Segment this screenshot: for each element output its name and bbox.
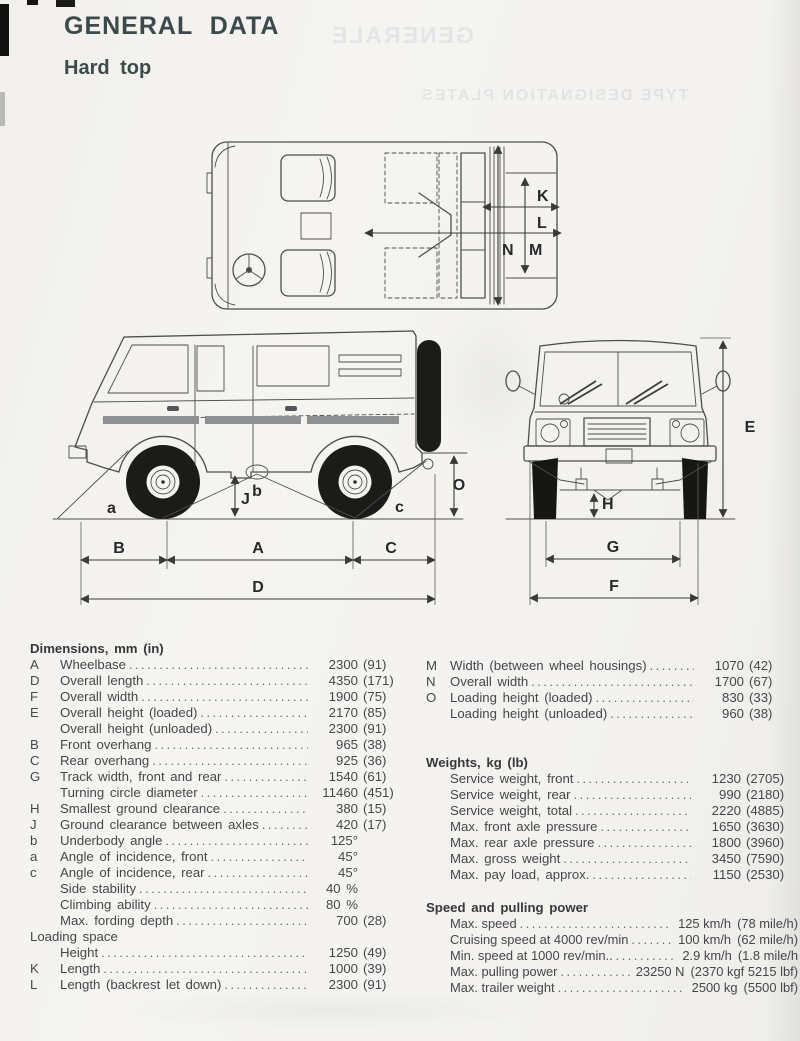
dotted-leader [520, 916, 672, 932]
dim-letter: c [30, 865, 60, 881]
table-row: Height 1250 (49) [30, 945, 412, 961]
dim-letter-H: H [602, 496, 614, 513]
front-seat [281, 250, 335, 296]
table-row: J Ground clearance between axles 420 (17… [30, 817, 412, 833]
dim-letter: a [30, 849, 60, 865]
table-row: Max. trailer weight 2500 kg (5500 lbf) [426, 980, 798, 996]
dim-value-imperial: (5500 lbf) [744, 980, 798, 996]
dim-label: Service weight, rear [450, 787, 571, 803]
dim-value-metric: 125° [314, 833, 358, 849]
dotted-leader [224, 977, 308, 993]
dim-value-metric: 1070 [700, 658, 744, 674]
rear-wheel [318, 445, 392, 519]
dim-letter-c: c [395, 499, 404, 516]
table-row: Service weight, total 2220 (4885) [426, 803, 798, 819]
dim-label: Length (backrest let down) [60, 977, 221, 993]
dim-label: Overall length [60, 673, 143, 689]
dotted-leader [101, 945, 308, 961]
dim-letter: F [30, 689, 60, 705]
dim-value-metric: 1700 [700, 674, 744, 690]
page-subtitle: Hard top [64, 57, 151, 80]
dotted-leader [631, 932, 672, 948]
dotted-leader [560, 964, 629, 980]
dim-letter-O: O [453, 477, 465, 494]
front-seat [281, 155, 335, 201]
dim-label: Overall width [60, 689, 138, 705]
dim-value-metric: 700 [314, 913, 358, 929]
dim-letter: M [426, 658, 450, 674]
dim-value-metric: 1800 [697, 835, 741, 851]
table-row: Turning circle diameter 11460 (451) [30, 785, 412, 801]
dim-value-metric: 23250 N [636, 964, 685, 980]
table-row: G Track width, front and rear 1540 (61) [30, 769, 412, 785]
dim-value-metric: 45° [314, 849, 358, 865]
dim-value-imperial: (2705) [746, 771, 798, 787]
dim-value-imperial: (3630) [746, 819, 798, 835]
dim-value-imperial: (2180) [746, 787, 798, 803]
dim-letter: H [30, 801, 60, 817]
dim-label: Max. gross weight [450, 851, 560, 867]
dim-label: Overall width [450, 674, 528, 690]
dim-value-imperial: (78 mile/h) [737, 916, 798, 932]
dim-label: Cruising speed at 4000 rev/min [450, 932, 628, 948]
table-row: Min. speed at 1000 rev/min.. 2.9 km/h (1… [426, 948, 798, 964]
dim-label: Max. fording depth [60, 913, 173, 929]
speed-header: Speed and pulling power [426, 900, 798, 916]
table-row: a Angle of incidence, front 45° [30, 849, 412, 865]
speed-table: Max. speed 125 km/h (78 mile/h) Cruising… [426, 916, 798, 996]
dotted-leader [200, 705, 308, 721]
table-row: Max. rear axle pressure 1800 (3960) [426, 835, 798, 851]
dim-letter-a: a [107, 500, 116, 517]
dim-label: Underbody angle [60, 833, 162, 849]
dotted-leader [531, 674, 694, 690]
dim-value-metric: 2170 [314, 705, 358, 721]
dim-letter: J [30, 817, 60, 833]
dim-value-metric: 965 [314, 737, 358, 753]
dim-value-imperial: (67) [749, 674, 798, 690]
dotted-leader [592, 867, 691, 883]
scan-smudge [120, 990, 540, 1030]
dim-label: Ground clearance between axles [60, 817, 259, 833]
dim-value-imperial: (38) [363, 737, 412, 753]
dim-label: Angle of incidence, rear [60, 865, 205, 881]
dim-letter: B [30, 737, 60, 753]
table-row: c Angle of incidence, rear 45° [30, 865, 412, 881]
dim-value-metric: 3450 [697, 851, 741, 867]
dim-value-metric: 45° [314, 865, 358, 881]
dotted-leader [141, 689, 308, 705]
dim-value-imperial: (91) [363, 977, 412, 993]
dotted-leader [129, 657, 308, 673]
dim-value-imperial: (39) [363, 961, 412, 977]
dim-value-metric: 1250 [314, 945, 358, 961]
dim-value-metric: 125 km/h [678, 916, 731, 932]
dim-value-imperial: (91) [363, 657, 412, 673]
dimensions-rows: A Wheelbase 2300 (91) D Overall length 4… [30, 657, 412, 993]
dotted-leader [146, 673, 308, 689]
dim-label: Max. front axle pressure [450, 819, 597, 835]
dim-label: Max. rear axle pressure [450, 835, 595, 851]
dim-letter: O [426, 690, 450, 706]
approach-angle-line [58, 451, 128, 518]
dotted-leader [215, 721, 308, 737]
front-dimension-arrows: E H G F [530, 338, 756, 605]
dim-label: Service weight, front [450, 771, 573, 787]
dim-label: Loading height (unloaded) [450, 706, 607, 722]
table-row: Service weight, front 1230 (2705) [426, 771, 798, 787]
dimensions-table-right: M Width (between wheel housings) 1070 (4… [426, 658, 798, 722]
dim-letter-B: B [113, 540, 125, 557]
bleed-through-text-2: TYPE DESIGNATION PLATES [420, 87, 689, 105]
wiper [626, 381, 662, 404]
dotted-leader [616, 948, 677, 964]
dim-value-metric: 830 [700, 690, 744, 706]
dim-value-imperial: (85) [363, 705, 412, 721]
wiper [560, 381, 596, 404]
dotted-leader [165, 833, 308, 849]
dim-value-imperial: (49) [363, 945, 412, 961]
dim-letter: b [30, 833, 60, 849]
dim-label: Loading height (loaded) [450, 690, 593, 706]
dim-value-metric: 960 [700, 706, 744, 722]
table-row: Max. front axle pressure 1650 (3630) [426, 819, 798, 835]
dotted-leader [596, 690, 694, 706]
dimensions-table: Dimensions, mm (in) A Wheelbase 2300 (91… [30, 641, 412, 993]
headlight [681, 424, 699, 442]
dim-value-imperial: (62 mile/h) [737, 932, 798, 948]
dim-label: Side stability [60, 881, 136, 897]
dim-value-metric: 2300 [314, 977, 358, 993]
dim-label: Wheelbase [60, 657, 126, 673]
dim-letter-N: N [502, 242, 514, 259]
dim-value-metric: 80 % [314, 897, 358, 913]
table-row: F Overall width 1900 (75) [30, 689, 412, 705]
dim-label: Max. trailer weight [450, 980, 555, 996]
table-row: Cruising speed at 4000 rev/min 100 km/h … [426, 932, 798, 948]
dotted-leader [176, 913, 308, 929]
dim-value-imperial: (42) [749, 658, 798, 674]
dim-value-metric: 2300 [314, 657, 358, 673]
table-row: H Smallest ground clearance 380 (15) [30, 801, 412, 817]
dotted-leader [152, 753, 308, 769]
dim-letter: C [30, 753, 60, 769]
dim-value-imperial: (36) [363, 753, 412, 769]
dim-value-metric: 2220 [697, 803, 741, 819]
dim-value-imperial: (61) [363, 769, 412, 785]
table-row: Climbing ability 80 % [30, 897, 412, 913]
dotted-leader [154, 897, 308, 913]
table-row: Service weight, rear 990 (2180) [426, 787, 798, 803]
table-row: N Overall width 1700 (67) [426, 674, 798, 690]
grille [584, 418, 650, 446]
dim-value-metric: 2.9 km/h [682, 948, 731, 964]
front-tire [682, 458, 708, 519]
dim-value-metric: 1230 [697, 771, 741, 787]
dim-value-metric: 1150 [697, 867, 741, 883]
dotted-leader [610, 706, 694, 722]
dim-value-metric: 420 [314, 817, 358, 833]
rear-bench [461, 153, 485, 298]
dim-value-imperial: (38) [749, 706, 798, 722]
dotted-leader [598, 835, 691, 851]
table-row: M Width (between wheel housings) 1070 (4… [426, 658, 798, 674]
dim-value-metric: 925 [314, 753, 358, 769]
dotted-leader [600, 819, 691, 835]
dim-letter-K: K [537, 188, 549, 205]
table-row: Max. gross weight 3450 (7590) [426, 851, 798, 867]
dotted-leader [558, 980, 686, 996]
dim-letter-M: M [529, 242, 542, 259]
dim-value-metric: 100 km/h [678, 932, 731, 948]
dim-letter-A: A [252, 540, 264, 557]
dim-label: Overall height (unloaded) [60, 721, 212, 737]
side-molding [205, 416, 301, 424]
dim-value-imperial: (4885) [746, 803, 798, 819]
bleed-through-text-1: GENERALE [330, 22, 474, 49]
table-row: D Overall length 4350 (171) [30, 673, 412, 689]
dim-label: Min. speed at 1000 rev/min.. [450, 948, 613, 964]
dotted-leader [211, 849, 309, 865]
dim-label: Max. pulling power [450, 964, 557, 980]
dim-label: Height [60, 945, 98, 961]
table-row: E Overall height (loaded) 2170 (85) [30, 705, 412, 721]
dim-value-metric: 11460 [314, 785, 358, 801]
spare-wheel [417, 340, 441, 452]
table-row: b Underbody angle 125° [30, 833, 412, 849]
dim-letter-D: D [252, 579, 264, 596]
headlight [541, 424, 559, 442]
dim-letter-J: J [241, 491, 250, 508]
tow-hook [423, 459, 433, 469]
table-row: B Front overhang 965 (38) [30, 737, 412, 753]
dim-letter-G: G [607, 539, 619, 556]
dim-value-imperial: (17) [363, 817, 412, 833]
dim-label: Smallest ground clearance [60, 801, 220, 817]
table-row: A Wheelbase 2300 (91) [30, 657, 412, 673]
dim-value-imperial: (1.8 mile/h [738, 948, 798, 964]
dim-letter-E: E [745, 419, 756, 436]
dim-label: Width (between wheel housings) [450, 658, 647, 674]
dotted-leader [563, 851, 691, 867]
vehicle-front-outline [506, 341, 730, 520]
dim-letter: L [30, 977, 60, 993]
front-tire [532, 458, 558, 519]
dim-label: Length [60, 961, 100, 977]
dotted-leader [262, 817, 308, 833]
dim-value-imperial: (2530) [746, 867, 798, 883]
dim-value-imperial: (7590) [746, 851, 798, 867]
dotted-leader [201, 785, 308, 801]
dim-label: Climbing ability [60, 897, 151, 913]
dim-letter: N [426, 674, 450, 690]
dim-value-imperial: (33) [749, 690, 798, 706]
dim-value-metric: 1000 [314, 961, 358, 977]
dim-value-imperial: (451) [363, 785, 412, 801]
dim-label: Service weight, total [450, 803, 572, 819]
plan-dimension-arrows: K L N M [365, 146, 561, 305]
dim-value-imperial: (15) [363, 801, 412, 817]
table-row: K Length 1000 (39) [30, 961, 412, 977]
front-wheel [126, 445, 200, 519]
dim-label: Track width, front and rear [60, 769, 221, 785]
table-row: L Length (backrest let down) 2300 (91) [30, 977, 412, 993]
dim-label: Angle of incidence, front [60, 849, 208, 865]
dim-letter: G [30, 769, 60, 785]
dotted-leader [139, 881, 308, 897]
dim-value-imperial: (2370 kgf 5215 lbf) [691, 964, 799, 980]
bumper [524, 446, 716, 461]
dim-label: Loading space [30, 929, 118, 945]
scanned-manual-page: GENERALE TYPE DESIGNATION PLATES GENERAL… [0, 0, 800, 1041]
dotted-leader [574, 787, 691, 803]
dim-label: Max. pay load, approx. [450, 867, 589, 883]
dim-value-metric: 4350 [314, 673, 358, 689]
table-row: Max. speed 125 km/h (78 mile/h) [426, 916, 798, 932]
right-column: M Width (between wheel housings) 1070 (4… [426, 658, 798, 996]
dim-label: Front overhang [60, 737, 151, 753]
dim-value-imperial: (3960) [746, 835, 798, 851]
dimensions-header: Dimensions, mm (in) [30, 641, 412, 657]
dim-value-metric: 1540 [314, 769, 358, 785]
top-view-drawing: K L N M [203, 133, 583, 318]
dim-value-metric: 1650 [697, 819, 741, 835]
side-molding [307, 416, 399, 424]
dim-label: Turning circle diameter [60, 785, 198, 801]
dim-value-metric: 990 [697, 787, 741, 803]
dim-letter: A [30, 657, 60, 673]
dim-letter-L: L [537, 215, 547, 232]
dim-value-imperial: (75) [363, 689, 412, 705]
page-title: GENERAL DATA [64, 12, 279, 41]
dim-label: Max. speed [450, 916, 517, 932]
dim-letter-F: F [609, 578, 619, 595]
dotted-leader [103, 961, 308, 977]
mirror [506, 371, 520, 391]
dim-label: Overall height (loaded) [60, 705, 197, 721]
scan-artifact [27, 0, 38, 5]
dotted-leader [575, 803, 691, 819]
table-row: Loading height (unloaded) 960 (38) [426, 706, 798, 722]
dim-value-imperial: (28) [363, 913, 412, 929]
side-molding [103, 416, 199, 424]
table-row: Max. fording depth 700 (28) [30, 913, 412, 929]
dim-value-metric: 2500 kg [692, 980, 738, 996]
dotted-leader [650, 658, 694, 674]
dim-value-metric: 40 % [314, 881, 358, 897]
dim-letter: D [30, 673, 60, 689]
dotted-leader [208, 865, 308, 881]
table-row: C Rear overhang 925 (36) [30, 753, 412, 769]
dotted-leader [223, 801, 308, 817]
dim-value-imperial: (91) [363, 721, 412, 737]
dim-label: Rear overhang [60, 753, 149, 769]
dim-value-metric: 2300 [314, 721, 358, 737]
scan-artifact [0, 92, 5, 126]
dim-letter-C: C [385, 540, 397, 557]
scan-artifact [0, 4, 9, 56]
weights-header: Weights, kg (lb) [426, 755, 798, 771]
table-row: Max. pay load, approx. 1150 (2530) [426, 867, 798, 883]
table-row: Overall height (unloaded) 2300 (91) [30, 721, 412, 737]
front-view-drawing: E H G F [500, 322, 800, 622]
dotted-leader [576, 771, 691, 787]
dotted-leader [224, 769, 308, 785]
dotted-leader [154, 737, 308, 753]
door-handle [167, 406, 179, 411]
vehicle-plan-outline [207, 142, 557, 309]
door-handle [285, 406, 297, 411]
dim-letter: K [30, 961, 60, 977]
dim-letter: E [30, 705, 60, 721]
scan-artifact [56, 0, 75, 7]
dim-letter-b: b [252, 483, 262, 500]
dim-value-metric: 1900 [314, 689, 358, 705]
table-row: Loading space [30, 929, 412, 945]
side-view-drawing: a b c J O B A C D [45, 322, 475, 622]
table-row: Side stability 40 % [30, 881, 412, 897]
dim-value-metric: 380 [314, 801, 358, 817]
table-row: O Loading height (loaded) 830 (33) [426, 690, 798, 706]
weights-table: Service weight, front 1230 (2705) Servic… [426, 771, 798, 883]
dim-value-imperial: (171) [363, 673, 412, 689]
table-row: Max. pulling power 23250 N (2370 kgf 521… [426, 964, 798, 980]
